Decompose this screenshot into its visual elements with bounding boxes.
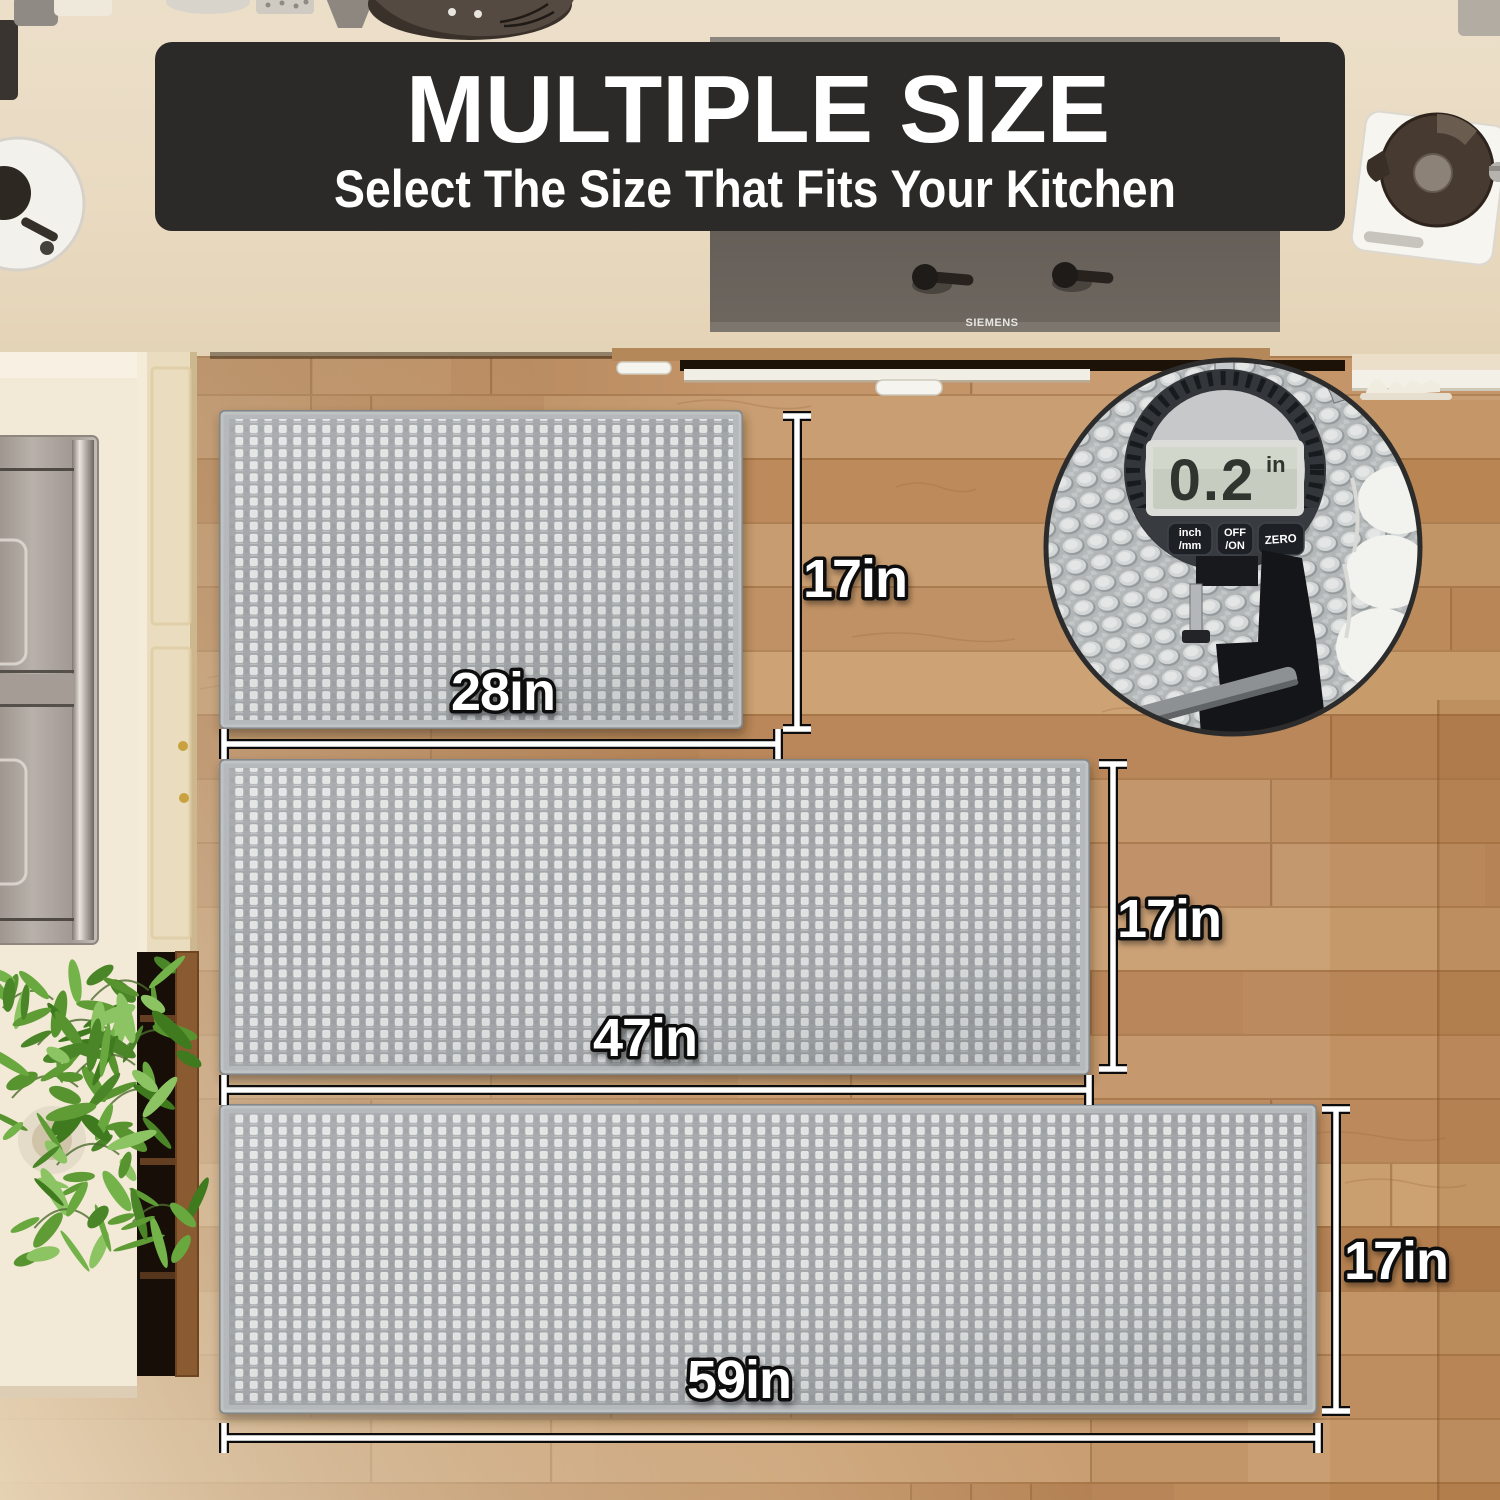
svg-text:Select The Size That Fits Your: Select The Size That Fits Your Kitchen (334, 160, 1176, 219)
svg-text:28in: 28in (451, 662, 555, 722)
svg-text:59in: 59in (687, 1350, 791, 1410)
svg-text:/mm: /mm (1179, 540, 1202, 552)
svg-text:OFF: OFF (1224, 527, 1246, 539)
svg-text:47in: 47in (593, 1008, 697, 1068)
svg-text:MULTIPLE SIZE: MULTIPLE SIZE (406, 56, 1110, 163)
svg-text:ZERO: ZERO (1264, 533, 1297, 547)
svg-text:17in: 17in (803, 549, 907, 609)
svg-text:17in: 17in (1117, 889, 1221, 949)
svg-text:SIEMENS: SIEMENS (965, 317, 1018, 329)
svg-text:inch: inch (1179, 527, 1202, 539)
svg-text:0.2: 0.2 (1169, 448, 1256, 513)
svg-text:/ON: /ON (1225, 540, 1245, 552)
svg-text:17in: 17in (1344, 1231, 1448, 1291)
svg-text:in: in (1266, 452, 1286, 477)
